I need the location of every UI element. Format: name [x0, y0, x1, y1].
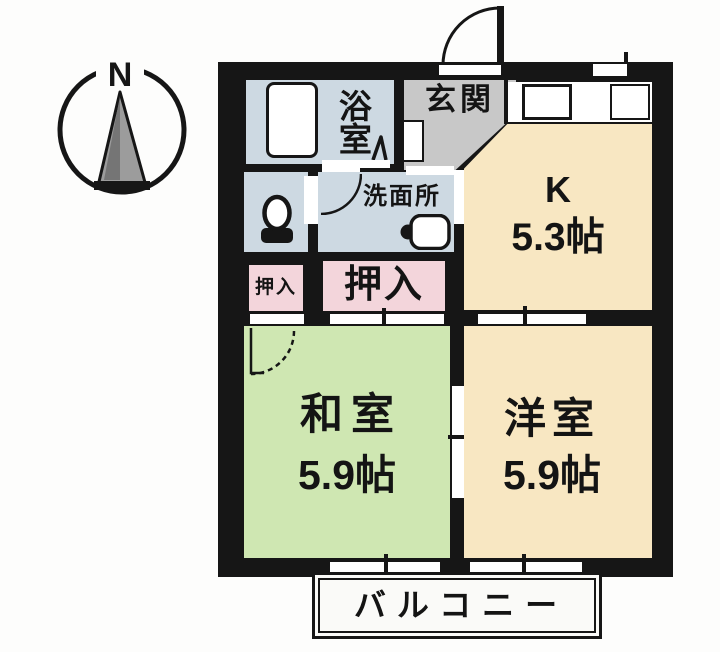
washroom-label: 洗面所: [354, 184, 450, 210]
entrance-label: 玄関: [408, 83, 512, 117]
closet-large-label: 押入: [344, 266, 424, 306]
entrance-step: [406, 166, 454, 175]
closet-large-opening: [330, 314, 444, 324]
north-label: N: [108, 56, 133, 94]
western-room-size: 5.9帖: [464, 452, 652, 500]
bathtub-icon: [266, 82, 318, 158]
folding-door-icon: [370, 132, 396, 162]
balcony-railing: バルコニー: [318, 578, 596, 633]
toilet-door-opening: [304, 176, 318, 224]
closet-small-opening: [250, 314, 304, 324]
door-arc-dashed-icon: [248, 328, 298, 378]
room-divider-opening: [452, 386, 464, 498]
sink-icon: [398, 214, 452, 250]
kitchen-room-opening: [478, 314, 586, 324]
door-swing-icon: [438, 6, 508, 66]
balcony-window-right: [470, 562, 582, 572]
floor-plan-page: N 浴室 洗面所: [0, 0, 720, 652]
balcony: バルコニー: [312, 572, 602, 639]
wall-divider: [504, 80, 508, 124]
balcony-label: バルコニー: [346, 589, 568, 623]
closet-small: 押入: [246, 262, 306, 314]
shoe-cabinet: [522, 84, 572, 120]
compass: N: [52, 50, 197, 198]
western-room: [464, 326, 652, 558]
washroom-door-opening: [322, 160, 360, 172]
closet-large: 押入: [320, 258, 448, 314]
entrance-door-opening: [437, 63, 503, 77]
closet-small-label: 押入: [255, 278, 297, 298]
western-room-label: 洋室: [464, 396, 652, 442]
toilet-icon: [258, 194, 296, 246]
japanese-room-size: 5.9帖: [244, 452, 450, 500]
kitchen-size: 5.3帖: [464, 216, 652, 260]
washroom-door: [402, 120, 424, 162]
window-opening: [593, 64, 627, 76]
building-outline: 浴室 洗面所 玄関: [218, 62, 673, 577]
japanese-room-label: 和室: [244, 392, 450, 440]
bath-label: 浴室: [330, 82, 374, 162]
north-arrow-icon: [98, 92, 146, 186]
storage-cabinet: [610, 84, 650, 120]
kitchen-label: K: [464, 170, 652, 210]
